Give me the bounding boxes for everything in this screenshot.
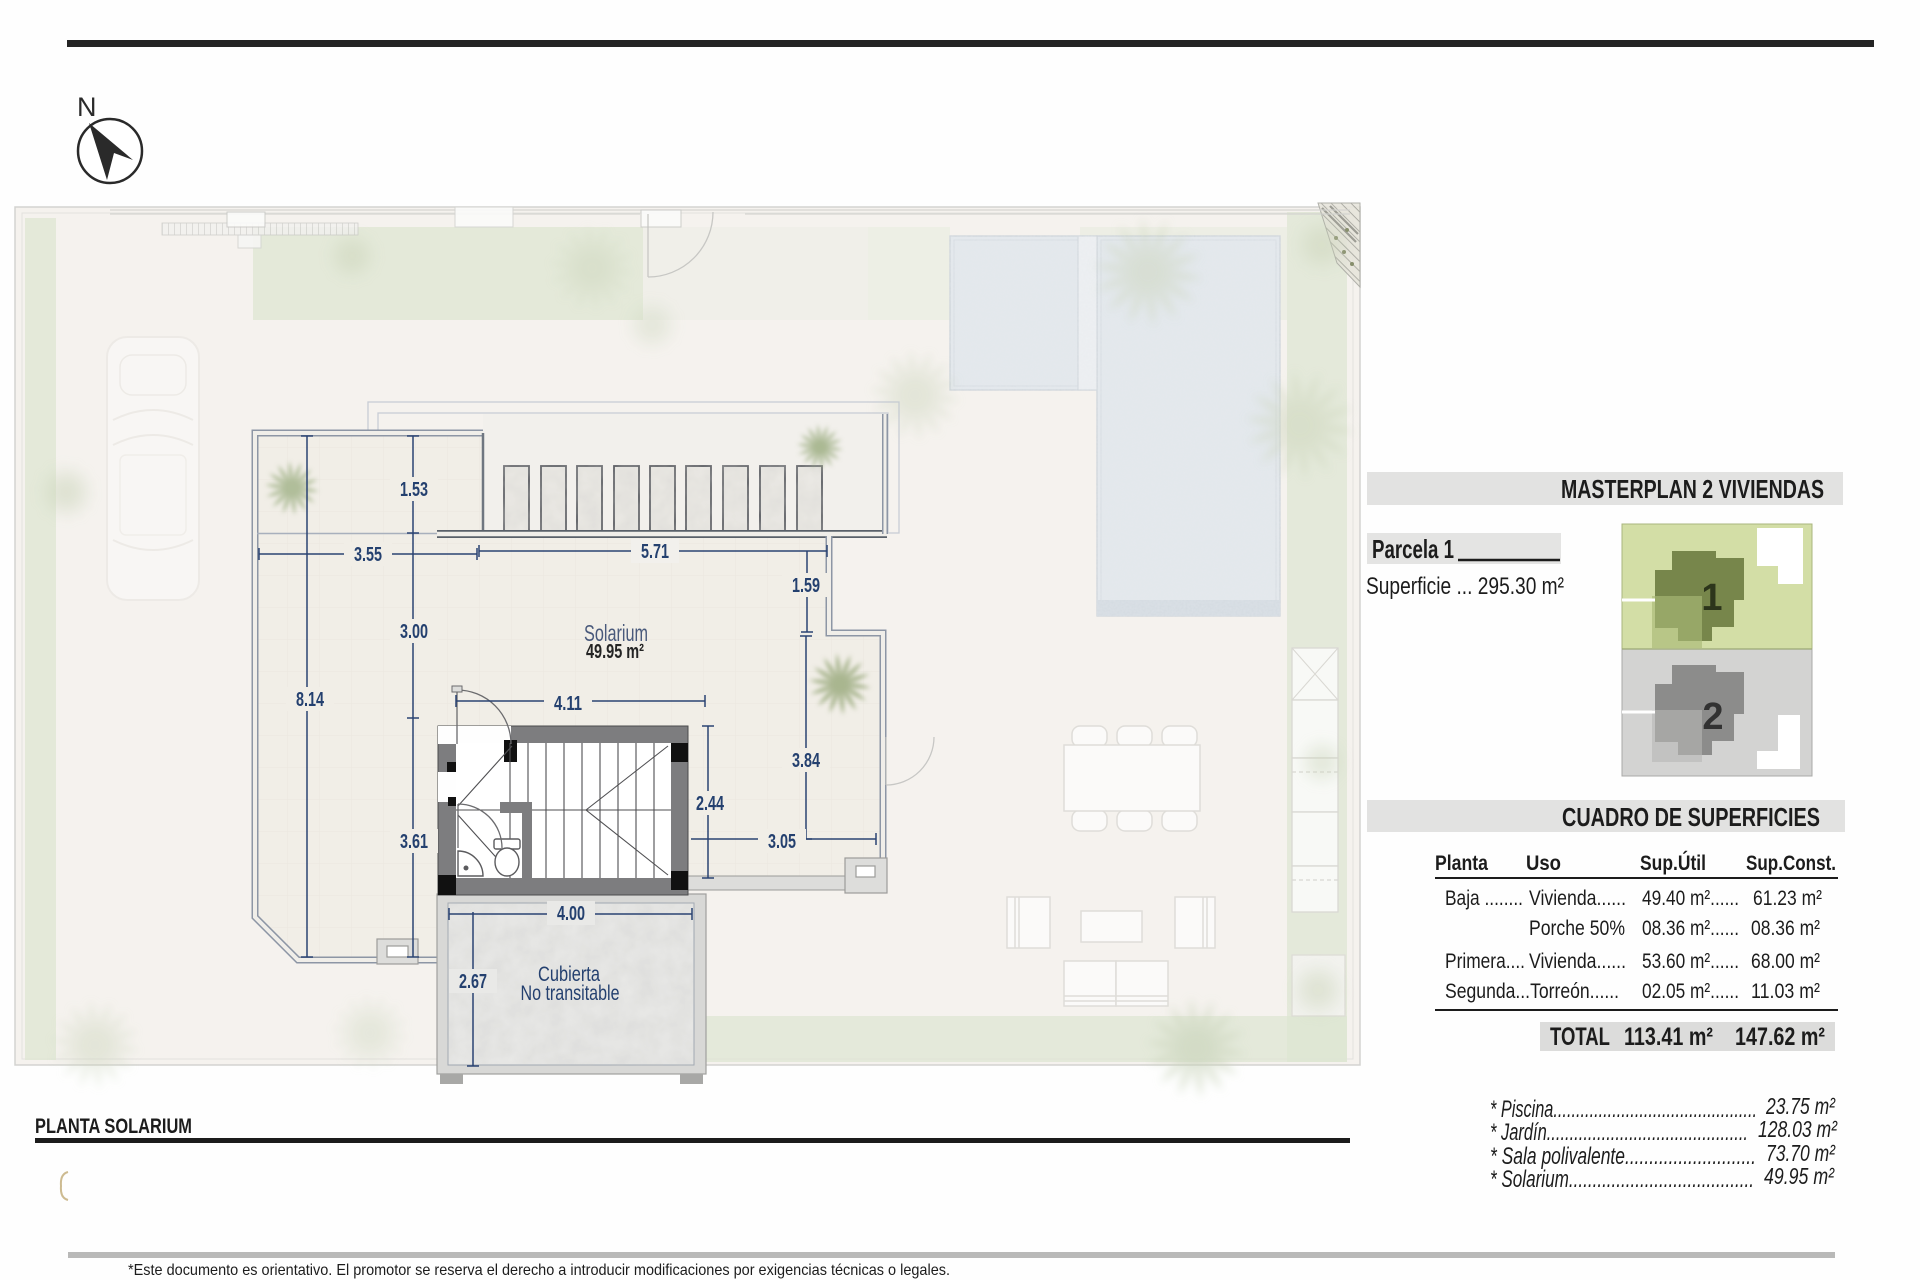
svg-text:2: 2 [1702,696,1723,738]
svg-text:Parcela 1: Parcela 1 [1372,534,1454,564]
svg-text:2.67: 2.67 [459,971,487,993]
svg-text:49.40 m²......: 49.40 m²...... [1642,887,1739,910]
svg-text:Uso: Uso [1526,851,1561,875]
svg-text:1.53: 1.53 [400,479,428,501]
svg-text:61.23 m²: 61.23 m² [1753,887,1822,910]
svg-text:No transitable: No transitable [521,982,620,1005]
svg-text:MASTERPLAN 2 VIVIENDAS: MASTERPLAN 2 VIVIENDAS [1561,474,1824,504]
svg-text:* Jardín......................: * Jardín................................… [1490,1119,1748,1146]
svg-text:Sup.Const.: Sup.Const. [1746,851,1836,875]
svg-text:3.00: 3.00 [400,621,428,643]
svg-text:TOTAL: TOTAL [1550,1023,1610,1051]
svg-text:49.95 m²: 49.95 m² [1764,1163,1835,1189]
svg-text:1.59: 1.59 [792,575,820,597]
svg-text:* Solarium....................: * Solarium..............................… [1490,1166,1754,1193]
svg-text:CUADRO DE SUPERFICIES: CUADRO DE SUPERFICIES [1562,802,1820,832]
svg-text:Vivienda......: Vivienda...... [1529,950,1626,973]
svg-text:08.36 m²......: 08.36 m²...... [1642,917,1739,940]
svg-text:128.03 m²: 128.03 m² [1758,1116,1838,1142]
svg-text:113.41 m²: 113.41 m² [1624,1023,1713,1051]
svg-text:3.05: 3.05 [768,831,796,853]
svg-text:Vivienda......: Vivienda...... [1529,887,1626,910]
svg-text:147.62 m²: 147.62 m² [1735,1023,1825,1051]
svg-text:Primera....: Primera.... [1445,950,1525,973]
svg-text:Porche 50%: Porche 50% [1529,917,1625,940]
svg-text:08.36 m²: 08.36 m² [1751,917,1820,940]
svg-text:8.14: 8.14 [296,689,325,711]
svg-text:Superficie ... 295.30 m²: Superficie ... 295.30 m² [1366,573,1564,600]
svg-text:49.95 m²: 49.95 m² [586,641,644,663]
svg-text:N: N [77,92,97,122]
svg-text:53.60 m²......: 53.60 m²...... [1642,950,1739,973]
svg-text:68.00 m²: 68.00 m² [1751,950,1820,973]
svg-text:Baja ........: Baja ........ [1445,887,1523,910]
svg-text:3.61: 3.61 [400,831,428,853]
svg-text:3.84: 3.84 [792,750,821,772]
svg-text:4.11: 4.11 [554,693,582,715]
svg-text:2.44: 2.44 [696,793,725,815]
svg-text:4.00: 4.00 [557,903,585,925]
svg-text:11.03 m²: 11.03 m² [1751,980,1820,1003]
svg-text:PLANTA SOLARIUM: PLANTA SOLARIUM [35,1115,192,1138]
svg-text:02.05 m²......: 02.05 m²...... [1642,980,1739,1003]
svg-text:Sup.Útil: Sup.Útil [1640,850,1706,875]
svg-text:Segunda...Torreón......: Segunda...Torreón...... [1445,980,1619,1003]
svg-text:5.71: 5.71 [641,541,669,563]
svg-text:1: 1 [1701,577,1722,619]
svg-text:*Este documento es orientativo: *Este documento es orientativo. El promo… [128,1262,950,1279]
svg-text:3.55: 3.55 [354,544,382,566]
svg-text:Planta: Planta [1435,851,1489,875]
